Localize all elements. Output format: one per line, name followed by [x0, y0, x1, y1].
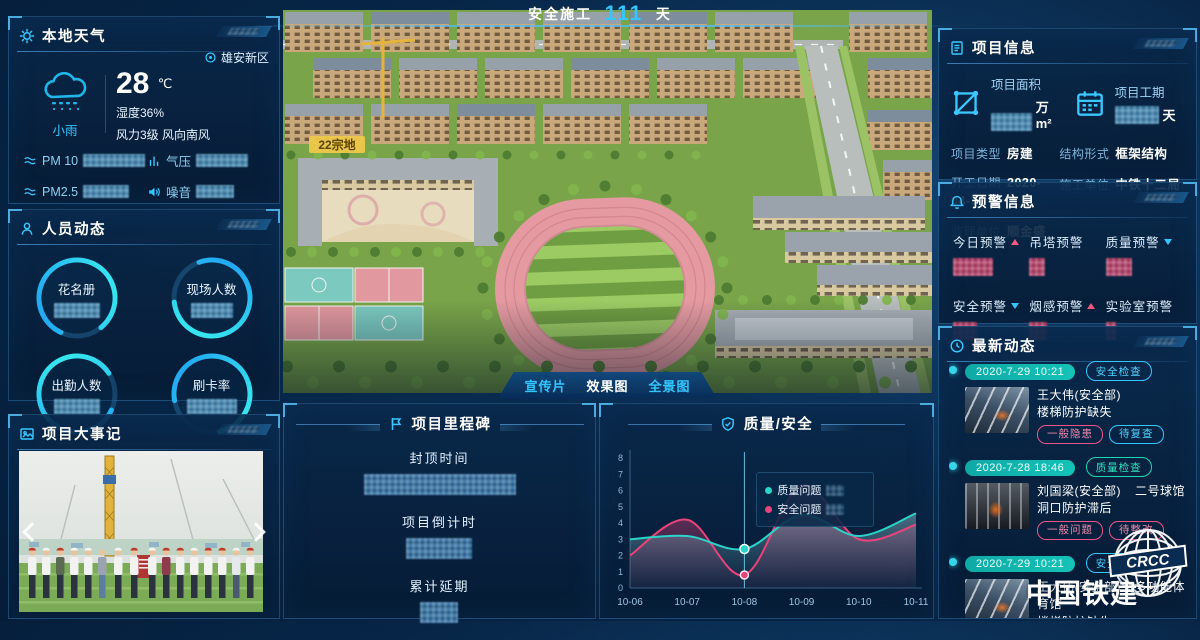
entry-category: 安全检查 — [1086, 361, 1152, 381]
blurred-value — [187, 399, 237, 414]
title-deco — [1133, 336, 1189, 347]
svg-text:7: 7 — [618, 469, 623, 479]
milestone-panel: 项目里程碑 封顶时间 项目倒计时 累计延期 — [283, 403, 596, 619]
photo-icon — [19, 426, 35, 442]
trend-down-icon — [1011, 303, 1019, 309]
chart-title: 质量/安全 — [744, 413, 814, 434]
activity-panel: 最新动态 2020-7-29 10:21 安全检查 王大伟(安全部) 楼梯防护缺… — [938, 326, 1197, 619]
milestone-photo — [19, 451, 269, 612]
temperature-unit: ℃ — [158, 76, 173, 91]
alert-today: 今日预警 — [953, 232, 1029, 276]
blurred-value — [826, 485, 844, 496]
weather-title: 本地天气 — [42, 25, 106, 46]
location-pin-icon — [204, 51, 217, 64]
field-structure: 结构形式框架结构 — [1059, 143, 1184, 163]
stat-roster: 花名册 — [34, 255, 120, 341]
svg-text:0: 0 — [618, 583, 623, 593]
alert-bell-icon — [949, 194, 965, 210]
gear-icon — [19, 28, 35, 44]
milestone-topping-time: 封顶时间 — [364, 448, 516, 495]
legend-quality: 质量问题 — [765, 482, 865, 498]
quality-dot-icon — [765, 487, 772, 494]
wind-text: 风力3级 风向南风 — [116, 126, 210, 143]
activity-entry[interactable]: 2020-7-29 10:21 安全检查 王大伟(安全部) 楼梯防护缺失 一般隐… — [949, 361, 1192, 444]
blurred-value — [196, 185, 234, 198]
blurred-value — [196, 154, 248, 167]
bars-icon — [147, 154, 161, 168]
entry-category: 安全检查 — [1086, 553, 1152, 573]
activity-entry[interactable]: 2020-7-29 10:21 安全检查 王大伟(安全部)多功能体育馆 楼梯防护… — [949, 553, 1192, 618]
stat-project-area: 项目面积 万m² — [949, 74, 1063, 131]
trend-up-icon — [1087, 303, 1095, 309]
milestones-photo-title: 项目大事记 — [42, 423, 122, 444]
entry-issue: 楼梯防护缺失 — [1037, 614, 1192, 618]
entry-time: 2020-7-29 10:21 — [965, 556, 1075, 572]
blurred-value — [364, 474, 516, 495]
weather-condition: 小雨 — [27, 120, 103, 139]
timeline-dot-icon — [949, 462, 957, 470]
tab-panorama[interactable]: 全景图 — [649, 376, 691, 395]
milestone-delay: 累计延期 — [409, 576, 469, 623]
rain-cloud-icon — [38, 69, 92, 113]
alert-quality: 质量预警 — [1106, 232, 1182, 276]
calendar-icon — [1073, 86, 1107, 120]
svg-text:3: 3 — [618, 534, 623, 544]
blurred-value — [1029, 258, 1045, 276]
site-model-view: 22宗地 宣传片 效果图 全景图 — [283, 10, 932, 393]
project-info-panel: 项目信息 项目面积 万m² 项目工期 天 项目类型房建 结构形式框架结构 开工日… — [938, 28, 1197, 180]
timeline-dot-icon — [949, 366, 957, 374]
blurred-value — [83, 185, 129, 198]
svg-text:2: 2 — [618, 551, 623, 561]
header-days: 111 — [605, 2, 644, 25]
weather-panel: 本地天气 雄安新区 小雨 28 ℃ 湿度36% 风力3级 风向南风 PM 10 … — [8, 16, 280, 204]
metric-noise: 噪音 — [147, 182, 271, 201]
activity-entry[interactable]: 2020-7-28 18:46 质量检查 刘国梁(安全部)二号球馆 洞口防护滞后… — [949, 457, 1192, 540]
tag-status: 待整改 — [1109, 521, 1164, 540]
milestones-photo-panel: 项目大事记 — [8, 414, 280, 619]
blurred-value — [54, 399, 100, 414]
svg-text:10-10: 10-10 — [846, 597, 872, 608]
metric-pressure: 气压 — [147, 151, 271, 170]
waves-icon — [23, 154, 37, 168]
blurred-value — [420, 602, 458, 623]
personnel-title: 人员动态 — [42, 218, 106, 239]
title-deco — [216, 424, 272, 435]
chart-area: 01234567810-0610-0710-0810-0910-1010-11 … — [600, 436, 933, 627]
metric-pm25: PM2.5 — [23, 182, 147, 201]
tag-hazard: 一般隐患 — [1037, 425, 1103, 444]
header-divider — [255, 25, 945, 27]
tab-rendering[interactable]: 效果图 — [586, 376, 628, 395]
blurred-value — [991, 113, 1032, 131]
svg-text:1: 1 — [618, 567, 623, 577]
area-icon — [949, 86, 983, 120]
metric-pm10: PM 10 — [23, 151, 147, 170]
header-title: 安全施工 — [528, 6, 592, 22]
document-icon — [949, 40, 965, 56]
waves-icon — [23, 185, 37, 199]
trend-up-icon — [1011, 239, 1019, 245]
activity-timeline: 2020-7-29 10:21 安全检查 王大伟(安全部) 楼梯防护缺失 一般隐… — [949, 361, 1192, 618]
page-header: 安全施工 111 天 — [0, 2, 1200, 26]
view-tabs: 宣传片 效果图 全景图 — [498, 372, 716, 398]
trend-down-icon — [1164, 239, 1172, 245]
svg-text:4: 4 — [618, 518, 623, 528]
svg-text:10-11: 10-11 — [904, 597, 929, 608]
inspection-photo-thumbnail — [965, 483, 1029, 529]
location-label: 雄安新区 — [221, 49, 269, 66]
speaker-icon — [147, 185, 161, 199]
tab-promo-video[interactable]: 宣传片 — [524, 376, 566, 395]
svg-text:8: 8 — [618, 453, 623, 463]
blurred-value — [826, 504, 844, 515]
stat-onsite: 现场人数 — [169, 255, 255, 341]
svg-text:10-06: 10-06 — [617, 597, 643, 608]
tag-hazard: 一般问题 — [1037, 521, 1103, 540]
milestone-countdown: 项目倒计时 — [402, 512, 477, 559]
svg-text:10-08: 10-08 — [732, 597, 758, 608]
site-model-image: 22宗地 — [283, 10, 932, 393]
blurred-value — [953, 258, 993, 276]
person-icon — [19, 221, 35, 237]
activity-title: 最新动态 — [972, 335, 1036, 356]
chart-tooltip: 质量问题 安全问题 — [756, 472, 874, 527]
blurred-value — [406, 538, 472, 559]
blurred-value — [1106, 258, 1132, 276]
blurred-value — [83, 154, 145, 167]
field-project-type: 项目类型房建 — [951, 143, 1059, 163]
title-deco — [1133, 38, 1189, 49]
header-unit: 天 — [656, 6, 672, 22]
flag-icon — [388, 416, 404, 432]
inspection-photo-thumbnail — [965, 579, 1029, 618]
svg-text:10-09: 10-09 — [789, 597, 815, 608]
entry-category: 质量检查 — [1086, 457, 1152, 477]
clock-icon — [949, 338, 965, 354]
entry-issue: 楼梯防护缺失 — [1037, 404, 1164, 421]
blurred-value — [54, 303, 100, 318]
quality-safety-panel: 质量/安全 01234567810-0610-0710-0810-0910-10… — [599, 403, 934, 619]
temperature-value: 28 — [116, 67, 149, 100]
project-info-title: 项目信息 — [972, 37, 1036, 58]
alerts-panel: 预警信息 今日预警 吊塔预警 质量预警 安全预警 烟感预警 实验室预警 — [938, 182, 1197, 324]
personnel-panel: 人员动态 花名册 现场人数 出勤人数 刷卡率 — [8, 209, 280, 401]
legend-safety: 安全问题 — [765, 501, 865, 517]
svg-text:10-07: 10-07 — [674, 597, 700, 608]
title-deco — [1133, 192, 1189, 203]
tag-status: 待复查 — [1109, 425, 1164, 444]
alerts-title: 预警信息 — [972, 191, 1036, 212]
milestone-title: 项目里程碑 — [412, 413, 492, 434]
title-deco — [216, 219, 272, 230]
plot-label: 22宗地 — [318, 137, 355, 152]
safety-dot-icon — [765, 506, 772, 513]
timeline-dot-icon — [949, 558, 957, 566]
location-button[interactable]: 雄安新区 — [204, 49, 269, 66]
shield-check-icon — [720, 416, 736, 432]
svg-text:5: 5 — [618, 502, 623, 512]
inspection-photo-thumbnail — [965, 387, 1029, 433]
entry-time: 2020-7-29 10:21 — [965, 364, 1075, 380]
humidity-text: 湿度36% — [116, 104, 210, 121]
entry-issue: 洞口防护滞后 — [1037, 500, 1185, 517]
title-deco — [216, 26, 272, 37]
entry-time: 2020-7-28 18:46 — [965, 460, 1075, 476]
blurred-value — [1115, 106, 1159, 124]
personnel-grid: 花名册 现场人数 出勤人数 刷卡率 — [9, 245, 279, 437]
blurred-value — [191, 303, 233, 318]
stat-project-duration: 项目工期 天 — [1073, 74, 1187, 131]
alert-crane: 吊塔预警 — [1029, 232, 1105, 276]
svg-text:6: 6 — [618, 486, 623, 496]
